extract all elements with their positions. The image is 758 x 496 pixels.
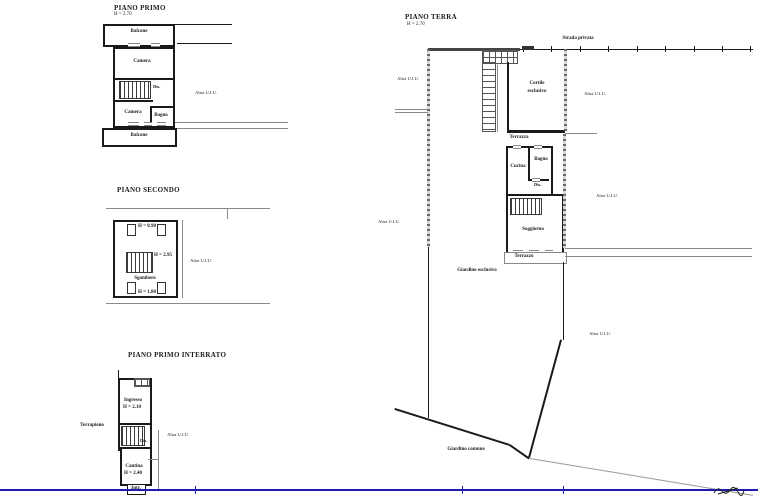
h-cantina-label: H = 2.40 — [124, 471, 142, 476]
h-mid-label: H = 2.95 — [154, 253, 172, 258]
wall — [507, 130, 565, 133]
roof-window-mark — [157, 224, 166, 236]
boundary-tick — [694, 46, 695, 52]
terrazzo-label: Terrazzo — [515, 254, 534, 259]
wall — [113, 78, 173, 80]
gate-mark — [522, 46, 534, 50]
boundary-tick — [637, 46, 638, 52]
property-boundary — [528, 339, 562, 457]
neighbor-line — [177, 128, 288, 129]
neighbor-line — [565, 133, 597, 134]
cortile-label-2: esclusivo — [528, 89, 547, 94]
cantina-label: Cantina — [125, 464, 142, 469]
wall — [113, 100, 153, 102]
strada-privata-label: Strada privata — [562, 36, 593, 41]
neighbor-line — [106, 208, 270, 209]
window-mark — [157, 122, 166, 126]
signature-mark — [712, 484, 746, 496]
wall — [177, 43, 232, 44]
boundary-tick — [608, 46, 609, 52]
plan-piano-primo-interrato: PIANO PRIMO INTERRATO Ingresso H = 2.10 … — [60, 345, 270, 496]
altra-uiu-label: Altra U.I.U. — [584, 91, 606, 96]
stair-hatch — [119, 81, 151, 99]
bagno-label: Bagno — [154, 113, 168, 118]
plan-piano-primo: PIANO PRIMO H = 2.70 Balcone Dis. Camera… — [95, 0, 305, 175]
ingresso-label: Ingresso — [124, 398, 142, 403]
piano-terra-title: PIANO TERRA — [405, 13, 457, 21]
window-mark — [128, 122, 139, 126]
altra-uiu-label: Altra U.I.U. — [378, 219, 400, 224]
external-stair-ladder — [482, 62, 496, 132]
wall — [507, 62, 509, 132]
altra-uiu-label: Altra U.I.U. — [596, 193, 618, 198]
property-boundary — [563, 262, 564, 340]
neighbor-line — [227, 208, 228, 219]
floorplan-sheet: PIANO PRIMO H = 2.70 Balcone Dis. Camera… — [0, 0, 758, 496]
property-boundary — [427, 49, 430, 247]
h-bottom-label: H = 1.80 — [138, 290, 156, 295]
giardino-comune-label: Giardino comune — [447, 447, 484, 452]
boundary-tick — [722, 46, 723, 52]
property-boundary — [428, 247, 429, 418]
neighbor-line — [565, 248, 752, 249]
neighbor-line — [565, 256, 752, 257]
balcone-top-label: Balcone — [131, 29, 148, 34]
roof-window-mark — [157, 282, 166, 294]
stair-hatch — [126, 252, 153, 273]
h-ingresso-label: H = 2.10 — [123, 405, 141, 410]
frame-tick — [195, 486, 196, 494]
altra-uiu-label: Altra U.I.U. — [589, 331, 611, 336]
terrazzo-outline — [504, 252, 567, 264]
frame-tick — [462, 486, 463, 494]
neighbor-line — [148, 459, 158, 460]
dis-label: Dis. — [153, 84, 160, 89]
stair-hatch — [121, 426, 145, 446]
frame-tick — [563, 486, 564, 494]
terrapieno-label: Terrapieno — [80, 423, 104, 428]
vent-grid — [134, 378, 150, 387]
altra-uiu-label: Altra U.I.U. — [167, 432, 189, 437]
neighbor-line — [182, 220, 183, 298]
property-boundary — [563, 134, 566, 248]
roof-window-mark — [127, 282, 136, 294]
plan-piano-secondo: PIANO SECONDO H = 0.90 H = 2.95 Sgombero… — [95, 180, 295, 310]
boundary-tick — [551, 46, 552, 52]
piano-primo-height-note: H = 2.70 — [114, 12, 132, 17]
window-mark — [144, 122, 152, 126]
bagno-label: Bagno — [534, 157, 548, 162]
altra-uiu-label: Altra U.I.U. — [190, 258, 212, 263]
boundary-tick — [665, 46, 666, 52]
camera-top-label: Camera — [133, 59, 150, 64]
wall — [528, 146, 530, 179]
h-top-label: H = 0.90 — [138, 224, 156, 229]
wall — [150, 106, 173, 108]
plan-piano-terra: PIANO TERRA H = 2.70 Strada privata Altr… — [368, 8, 758, 496]
property-boundary — [564, 49, 567, 131]
neighbor-line — [395, 109, 428, 110]
stair-hatch — [510, 198, 542, 215]
fence-line — [509, 444, 530, 459]
altra-uiu-label: Altra U.I.U. — [195, 90, 217, 95]
sgombero-label: Sgombero — [134, 276, 156, 281]
dis-label: Dis. — [140, 438, 147, 443]
fence-line — [395, 408, 510, 445]
neighbor-line — [175, 122, 288, 123]
soggiorno-label: Soggiorno — [522, 227, 544, 232]
window-mark — [534, 145, 542, 149]
sheet-frame-line — [0, 489, 758, 491]
window-mark — [513, 145, 521, 149]
dis-label: Dis. — [534, 182, 541, 187]
neighbor-line — [106, 303, 270, 304]
boundary-tick — [580, 46, 581, 52]
piano-interrato-title: PIANO PRIMO INTERRATO — [128, 351, 226, 359]
piano-secondo-title: PIANO SECONDO — [117, 186, 180, 194]
neighbor-line — [158, 430, 159, 490]
neighbor-line — [395, 112, 428, 113]
boundary-tick — [750, 46, 751, 52]
piano-primo-title: PIANO PRIMO — [114, 4, 166, 12]
terrazza-label: Terrazza — [510, 135, 529, 140]
cucina-label: Cucina — [510, 164, 525, 169]
wall — [497, 65, 498, 132]
altra-uiu-label: Altra U.I.U. — [397, 76, 419, 81]
roof-window-mark — [127, 224, 136, 236]
piano-terra-height-note: H = 2.70 — [407, 22, 425, 27]
giardino-esclusivo-label: Giardino esclusivo — [457, 268, 497, 273]
balcone-bottom-label: Balcone — [131, 133, 148, 138]
cortile-label-1: Cortile — [530, 81, 545, 86]
camera-bottom-label: Camera — [124, 110, 141, 115]
